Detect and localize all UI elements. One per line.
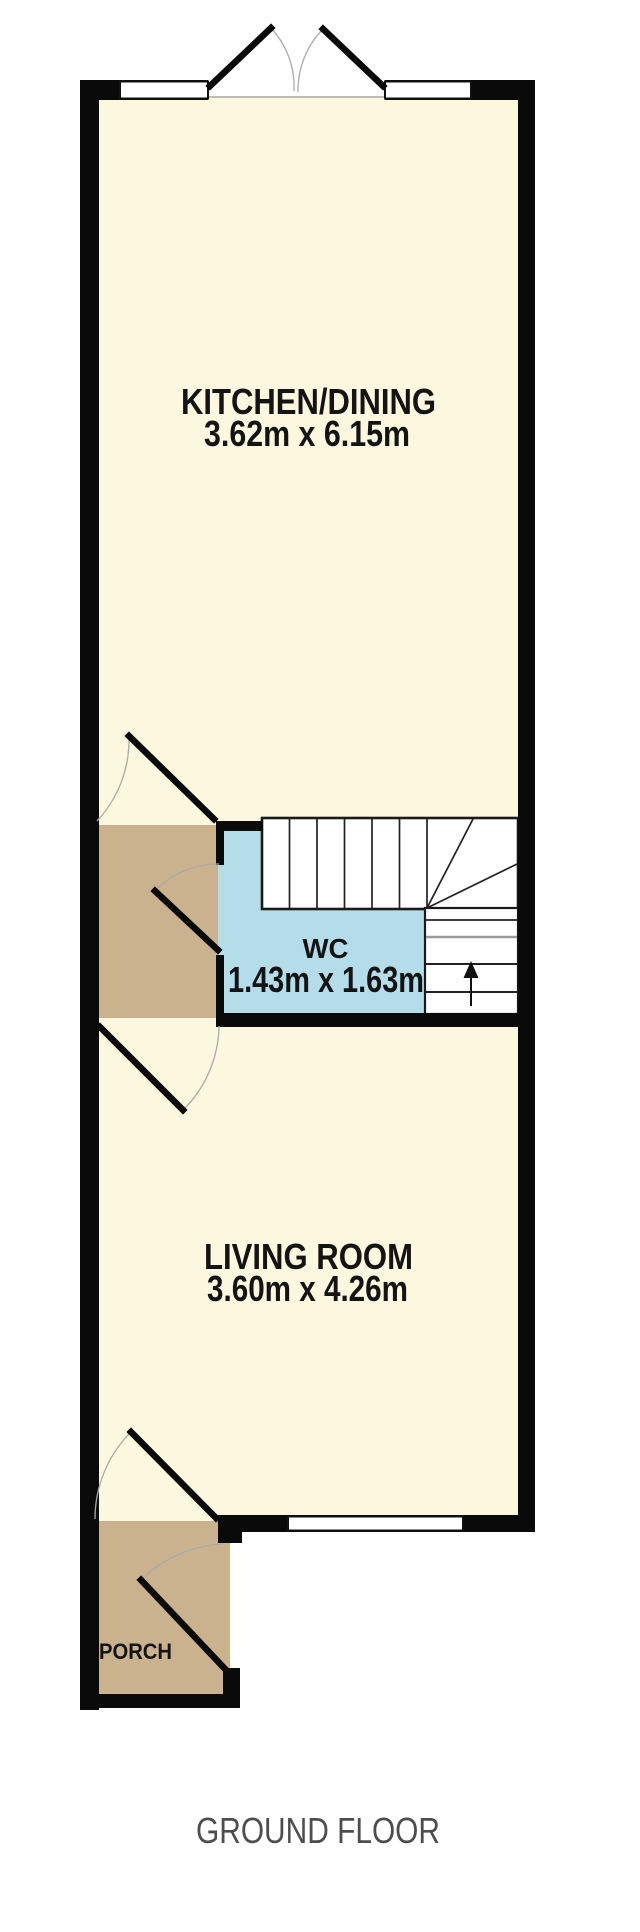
svg-text:1.43m x 1.63m: 1.43m x 1.63m — [228, 959, 424, 1000]
svg-text:3.62m x 6.15m: 3.62m x 6.15m — [204, 413, 410, 454]
svg-text:3.60m x 4.26m: 3.60m x 4.26m — [207, 1268, 408, 1309]
svg-text:GROUND FLOOR: GROUND FLOOR — [196, 1810, 440, 1851]
svg-text:PORCH: PORCH — [99, 1639, 172, 1664]
